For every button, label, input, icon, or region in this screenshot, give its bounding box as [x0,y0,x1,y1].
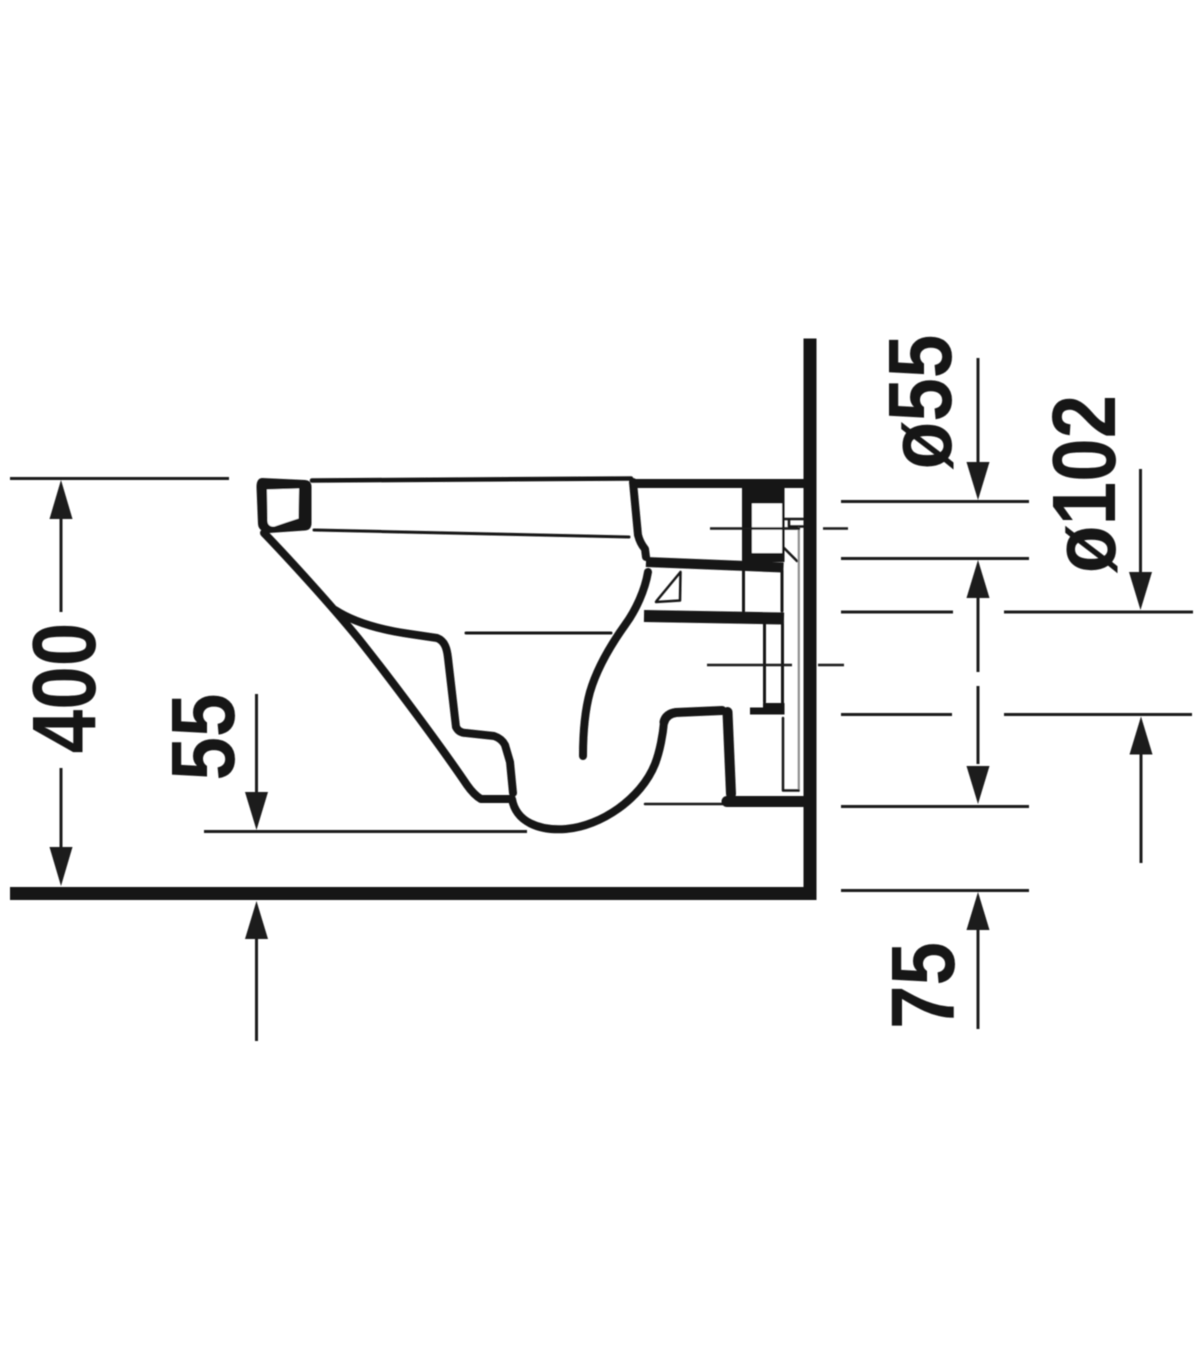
svg-text:55: 55 [153,693,253,780]
svg-text:ø55: ø55 [870,335,970,470]
svg-text:75: 75 [873,942,973,1029]
svg-text:400: 400 [14,623,114,754]
svg-text:ø102: ø102 [1034,395,1134,573]
